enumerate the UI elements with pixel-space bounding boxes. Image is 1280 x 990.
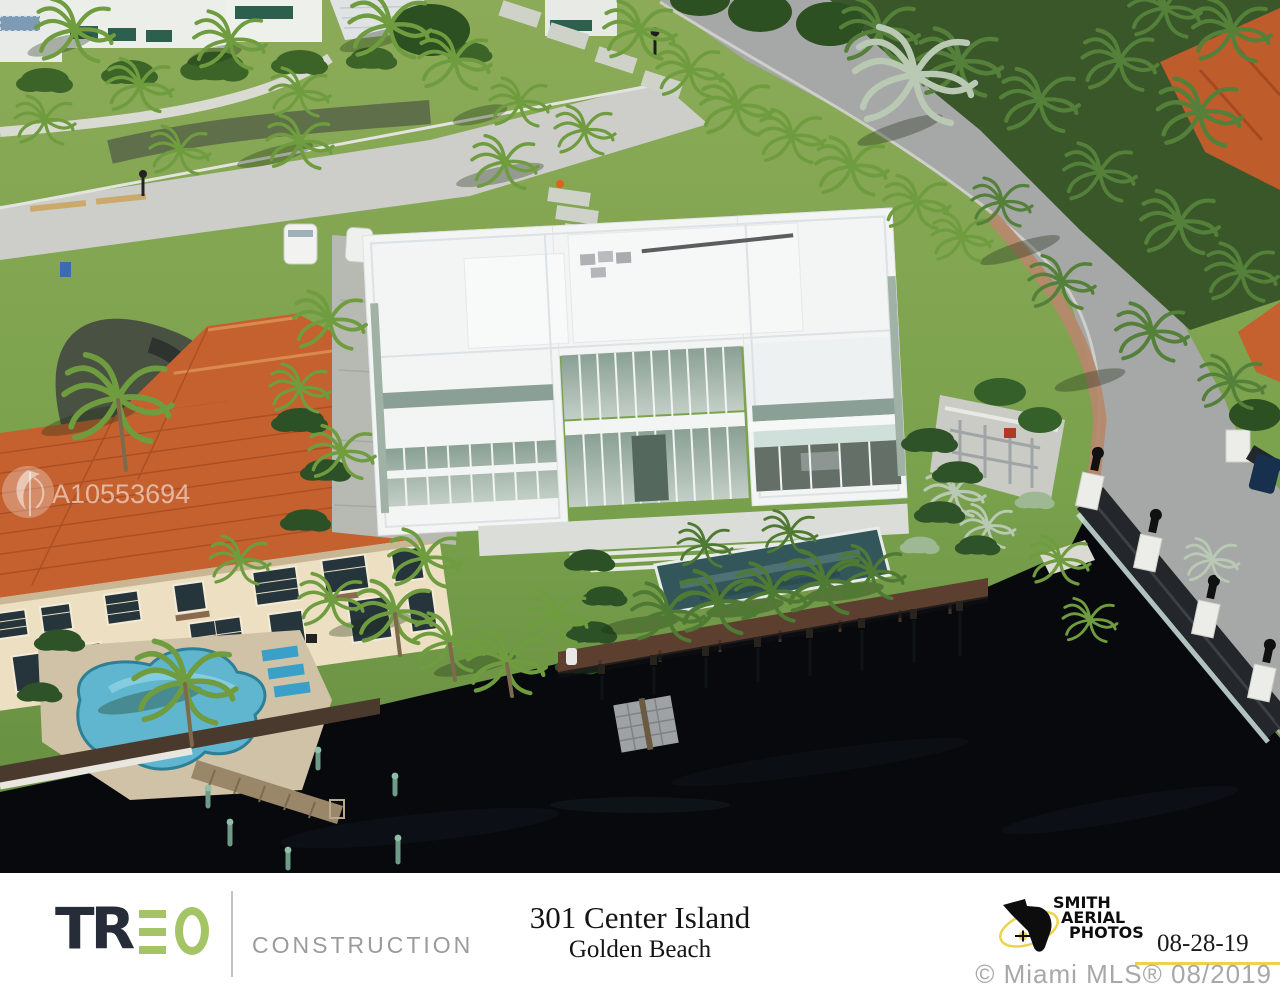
treo-o-ring-icon [175,907,209,955]
courtyard-glass [561,346,749,507]
grill [306,634,317,643]
smith-line3: PHOTOS [1069,925,1144,940]
treo-logo: TR [55,900,209,958]
property-address: 301 Center Island [440,901,840,935]
smith-logo-text: SMITH AERIAL PHOTOS [1053,895,1144,940]
treo-e-bars-icon [139,910,166,954]
street-lamp [139,170,147,178]
aerial-photo: A10553694 [0,0,1280,873]
treo-tr-letters: TR [55,902,131,957]
white-van [284,224,317,264]
footer-bar: TR CONSTRUCTION 301 Center Island Golden… [0,873,1280,990]
listing-photo-page: A10553694 TR CONSTRUCTION 301 Center Isl… [0,0,1280,990]
photo-date: 08-28-19 [1157,930,1249,958]
florida-silhouette-icon [1003,899,1052,952]
patio-table [801,451,842,471]
red-equipment [1004,428,1016,438]
property-address-block: 301 Center Island Golden Beach [440,901,840,965]
blue-trash-bin [60,262,71,277]
mls-copyright: © Miami MLS® 08/2019 [975,959,1272,990]
footer-divider [231,891,233,977]
smith-logo-graphic [998,893,1060,959]
watermark-id: A10553694 [52,479,190,509]
modern-mansion [363,208,910,581]
traffic-cone [556,180,564,188]
property-city: Golden Beach [440,935,840,965]
dock-post-white [566,648,577,665]
gate-pillar [1226,430,1250,462]
